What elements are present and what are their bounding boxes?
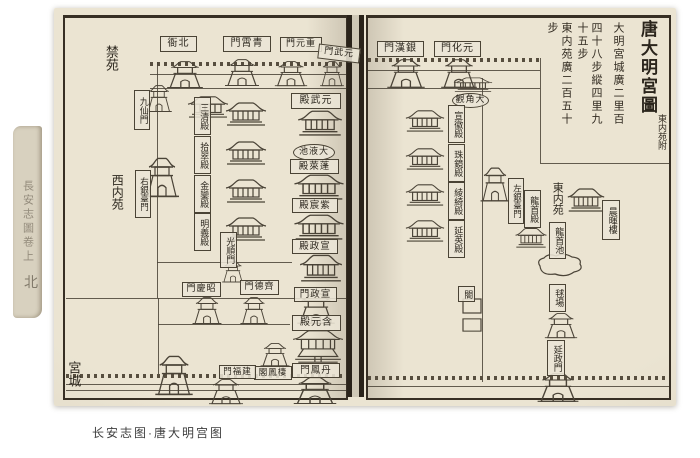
scan-root: 禁苑西内苑宮城衙北門霄青門元重門武元九仙門右銀臺門三清殿拾翠殿金鑾殿明義殿光順門… <box>0 0 700 458</box>
chenhui-tower-building <box>566 186 606 212</box>
zhaoqing-gate-tower <box>190 296 224 326</box>
map-note-column: 步 <box>544 22 560 44</box>
yinhan-gate-label: 門漢銀 <box>377 41 424 57</box>
zhaoqing-gate-label: 門慶昭 <box>182 282 221 297</box>
xuanzheng-hall-building <box>298 252 344 282</box>
map-note-column: 四十八步縱四里九 <box>588 22 604 158</box>
small-court <box>462 318 482 332</box>
wall-line <box>540 58 541 163</box>
longshou-hall-label: 龍首殿 <box>524 190 541 228</box>
sanqing-hall-building <box>224 100 268 126</box>
shicui-hall-label: 拾翠殿 <box>194 136 211 174</box>
jinyuan-region: 禁苑 <box>101 36 119 80</box>
southwest-corner-tower <box>152 354 196 398</box>
yanying-hall-label: 延英殿 <box>448 220 465 258</box>
zichen-hall-building <box>292 212 346 240</box>
jinluan-hall-building <box>224 177 268 203</box>
spine-text: 長安志圖卷上 <box>20 180 36 264</box>
yuanwu-gate-tower <box>318 60 346 88</box>
yinhan-gate-tower <box>384 58 428 90</box>
qide-gate-tower <box>238 296 270 326</box>
shicui-hall-building <box>224 139 268 165</box>
chongyuan-gate-label: 門元重 <box>280 37 322 52</box>
north-wall-tower <box>272 60 310 88</box>
qide-gate-label: 門德齊 <box>240 280 279 295</box>
hanyuan-hall-label: 殿元含 <box>292 315 341 331</box>
qingxiao-gate-label: 門霄青 <box>223 36 271 52</box>
ge-gate-label: 閤 <box>458 286 475 302</box>
mingyi-hall-label: 明義殿 <box>194 213 211 251</box>
youyintai-gate-label: 右銀臺門 <box>135 170 151 218</box>
spine-char: 北 <box>24 272 38 292</box>
zichen-hall-label: 殿宸紫 <box>292 198 338 213</box>
map-subtitle: 東内苑附 <box>653 114 668 164</box>
gongcheng-region: 宮城 <box>64 356 81 392</box>
xuanhui-hall-building <box>404 108 446 132</box>
yanzheng-gate-tower <box>534 372 582 404</box>
wall-line <box>540 163 669 164</box>
xuanzheng-gate-label: 門政宣 <box>294 287 337 302</box>
zhujing-hall-label: 珠鏡殿 <box>448 144 465 182</box>
qiuchang-label: 毬場 <box>549 284 566 312</box>
xineiyuan-region: 西内苑 <box>108 166 126 218</box>
map-note-column: 東内苑廣二百五十 <box>558 22 574 158</box>
wall-line <box>482 78 483 382</box>
caption: 长安志图·唐大明宫图 <box>92 424 224 441</box>
jinluan-hall-label: 金鑾殿 <box>194 175 211 213</box>
chenhui-tower-label: 晨暉樓 <box>602 200 620 240</box>
yanying-hall-building <box>404 218 446 242</box>
yuanwu-hall-label: 殿武元 <box>291 93 341 109</box>
lingqi-hall-building <box>404 182 446 206</box>
map-note-column: 大明宮城廣二里百 <box>610 22 626 158</box>
yanzheng-gate-label: 延政門 <box>547 340 565 376</box>
penglai-hall-label: 殿萊蓬 <box>290 159 339 174</box>
qiuchang-tower <box>542 312 580 340</box>
zhujing-hall-building <box>404 146 446 170</box>
wall-line <box>368 386 669 387</box>
beiya-label: 衙北 <box>160 36 197 52</box>
jianfu-gate-tower <box>206 378 246 406</box>
hanyuan-hall-building <box>290 328 346 366</box>
dongneiyuan-region: 東内苑 <box>549 178 566 218</box>
north-inner-hall <box>452 76 494 92</box>
danfeng-gate-label: 門鳳丹 <box>292 363 340 378</box>
yuanwu-hall-building <box>296 108 344 136</box>
wall-line <box>158 324 290 325</box>
zuoyintai-gate-label: 左銀臺門 <box>508 178 524 224</box>
longshou-pool-label: 龍首池 <box>549 222 566 259</box>
jiuxian-gate-label: 九仙門 <box>134 90 150 130</box>
longshou-hall-building <box>514 226 548 248</box>
danfeng-gate-tower <box>290 376 340 406</box>
map-note-column: 十五步 <box>574 22 590 76</box>
sanqing-hall-label: 三清殿 <box>194 97 211 135</box>
xuanzheng-hall-label: 殿政宣 <box>292 239 338 254</box>
qifeng-pavilion-label: 閣鳳棲 <box>254 366 292 380</box>
guangshun-gate-label: 光順門 <box>220 232 237 268</box>
jianfu-gate-label: 門福建 <box>219 365 256 379</box>
penglai-hall-building <box>292 172 346 200</box>
map-title: 唐大明宮圖 <box>630 20 660 120</box>
qingxiao-gate-tower <box>222 58 262 88</box>
qifeng-pavilion-tower <box>258 342 292 368</box>
yuanhua-gate-label: 門化元 <box>434 41 481 57</box>
xuanhui-hall-label: 宣徽殿 <box>448 105 465 143</box>
lingqi-hall-label: 綾綺殿 <box>448 182 465 220</box>
zuoyintai-gate-tower <box>478 166 512 204</box>
wall-crenellation <box>368 376 669 380</box>
